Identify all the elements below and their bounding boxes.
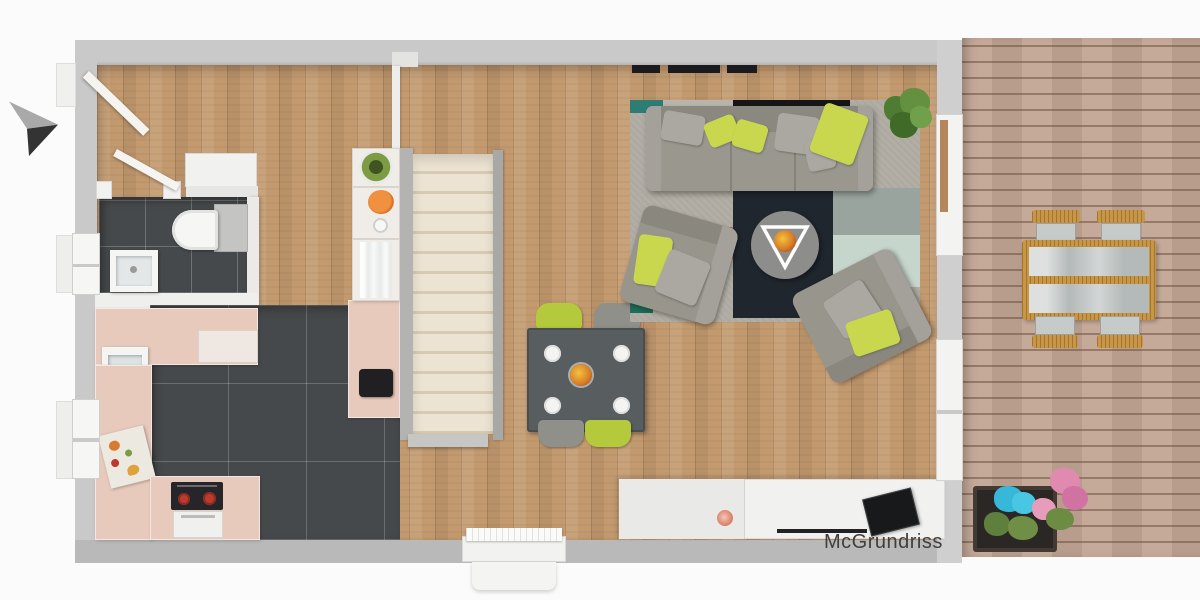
oven-front (173, 511, 223, 538)
outdoor-table (1022, 240, 1156, 320)
burner (203, 492, 216, 505)
watermark: McGrundriss (824, 531, 943, 554)
dining-chair-lime (536, 303, 582, 330)
shelf-divider (352, 238, 400, 240)
window-frame (73, 400, 99, 478)
shelf-divider (352, 186, 400, 188)
sofa (646, 106, 873, 191)
cup (373, 218, 388, 233)
burner (178, 493, 190, 505)
bathroom-door-post (97, 182, 111, 198)
food-item (108, 440, 121, 452)
partition-wall (392, 52, 418, 67)
foliage (1008, 516, 1038, 540)
entry-outside-stub (57, 64, 75, 106)
dining-chair-lime (585, 420, 631, 447)
stair-rail-right (493, 150, 503, 440)
partition-wall (392, 66, 400, 154)
toilet-bowl (172, 210, 218, 250)
stair-stringer-left (400, 148, 413, 440)
foliage (984, 512, 1010, 536)
sofa-pillow-gray (660, 110, 707, 147)
kitchen-shelf-unit (352, 148, 400, 301)
food-item (126, 464, 140, 477)
bathroom-wall-right (247, 197, 259, 308)
chair-backrest (1097, 210, 1145, 223)
food-item (110, 458, 120, 468)
chair-backrest (1032, 210, 1080, 223)
chair-seat (1100, 316, 1140, 335)
staircase-treads (413, 154, 493, 434)
window-bar (727, 65, 757, 73)
toilet-cistern (214, 204, 248, 252)
sofa-arm-left (646, 106, 661, 191)
orange-bowl (368, 190, 394, 214)
table-center-bar (1022, 276, 1156, 284)
plate (613, 397, 630, 414)
outside-step (472, 562, 556, 590)
pink-flowers (1062, 486, 1088, 510)
faucet (130, 266, 137, 273)
fruit-bowl (570, 364, 592, 386)
dining-chair-gray (538, 420, 584, 447)
dining-table (527, 328, 645, 432)
radiator (466, 528, 562, 541)
plate (613, 345, 630, 362)
entrance-arrow-icon (8, 98, 58, 156)
fruit-plate (774, 230, 796, 252)
plate (544, 345, 561, 362)
window-bar (632, 65, 660, 73)
chair-backrest (1097, 335, 1143, 348)
rug-patch-graygreen (833, 188, 920, 235)
foliage (1046, 508, 1074, 530)
window-bar (668, 65, 720, 73)
chair-backrest (1032, 335, 1078, 348)
oven-handle (181, 515, 215, 518)
glassware (360, 242, 392, 298)
sideboard-left-section (619, 479, 745, 539)
window-frame (73, 234, 99, 294)
floor-plan-canvas: McGrundriss (0, 0, 1200, 600)
outdoor-chair (1097, 210, 1145, 242)
cooktop-controls (177, 485, 217, 487)
dishwasher-front (198, 330, 258, 363)
bathroom-sink (110, 250, 158, 292)
coffee-machine (359, 369, 393, 397)
cooktop (171, 482, 223, 510)
outdoor-chair (1032, 210, 1080, 242)
potted-plant (910, 106, 932, 128)
patio-window-frame (937, 340, 962, 480)
chair-seat (1035, 316, 1075, 335)
plate (544, 397, 561, 414)
patio-door-leaf (940, 120, 948, 212)
food-item (124, 449, 132, 457)
rose-decor (717, 510, 733, 526)
kitchen-counter-right (348, 300, 400, 418)
outdoor-chair (1032, 316, 1078, 348)
hall-closet (186, 154, 256, 186)
green-plate (359, 150, 393, 184)
wall-left (75, 40, 97, 563)
stair-bottom-step (408, 434, 488, 447)
outdoor-chair (1097, 316, 1143, 348)
wall-top (75, 40, 962, 65)
